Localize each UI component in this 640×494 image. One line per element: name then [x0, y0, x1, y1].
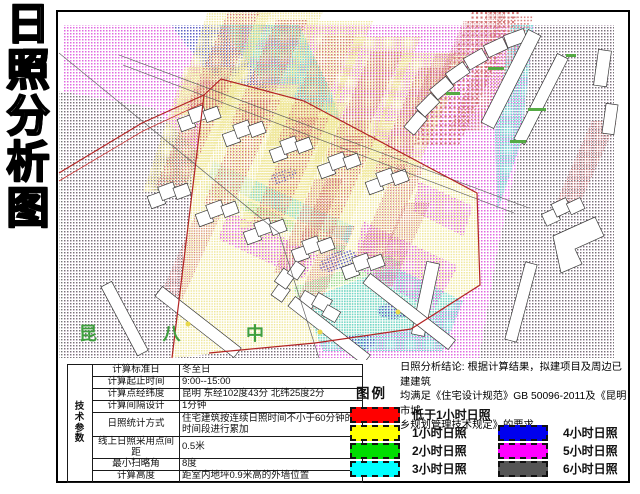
- tech-params-table: 技术参数 计算标准日 冬至日 计算起止时间 9:00--15:00 计算点经纬度…: [67, 364, 363, 483]
- title-char: 析: [2, 140, 54, 186]
- title-char: 图: [2, 186, 54, 232]
- legend-item: 3小时日照: [350, 460, 467, 477]
- legend-label: 5小时日照: [563, 442, 618, 459]
- legend-label: 4小时日照: [563, 424, 618, 441]
- tech-params-header: 技术参数: [68, 365, 93, 483]
- legend-item: 4小时日照: [498, 424, 618, 441]
- legend-swatch: [350, 425, 400, 441]
- legend-label: 低于1小时日照: [412, 406, 491, 423]
- row-label: 日照统计方式: [93, 413, 180, 437]
- title-char: 日: [2, 2, 54, 48]
- row-label: 计算高度: [93, 471, 180, 483]
- sheet-title-vertical: 日 照 分 析 图: [2, 2, 56, 232]
- row-value: 1分钟: [180, 401, 363, 413]
- legend-swatch: [350, 407, 400, 423]
- row-value: 冬至日: [180, 365, 363, 377]
- legend-swatch: [350, 443, 400, 459]
- legend-swatch: [498, 461, 548, 477]
- legend-swatch: [350, 461, 400, 477]
- legend-item: 6小时日照: [498, 460, 618, 477]
- legend-item: 低于1小时日照: [350, 406, 491, 423]
- row-label: 计算间隔设计: [93, 401, 180, 413]
- row-value: 距室内地坪0.9米高的外墙位置: [180, 471, 363, 483]
- legend-label: 1小时日照: [412, 424, 467, 441]
- legend-title: 图例: [356, 382, 387, 402]
- legend-item: 1小时日照: [350, 424, 467, 441]
- row-label: 计算标准日: [93, 365, 180, 377]
- title-char: 照: [2, 48, 54, 94]
- drawing-sheet: 日 照 分 析 图: [0, 0, 640, 494]
- row-value: 昆明 东经102度43分 北纬25度2分: [180, 389, 363, 401]
- row-label: 计算点经纬度: [93, 389, 180, 401]
- legend-label: 6小时日照: [563, 460, 618, 477]
- legend-label: 2小时日照: [412, 442, 467, 459]
- row-value: 住宅建筑按连续日照时间不小于60分钟的时间段进行累加: [180, 413, 363, 437]
- row-label: 计算起止时间: [93, 377, 180, 389]
- legend-swatch: [498, 425, 548, 441]
- row-value: 8度: [180, 459, 363, 471]
- row-value: 0.5米: [180, 437, 363, 459]
- legend-swatch: [498, 443, 548, 459]
- title-char: 分: [2, 94, 54, 140]
- legend-label: 3小时日照: [412, 460, 467, 477]
- row-label: 最小扫略角: [93, 459, 180, 471]
- legend-item: 5小时日照: [498, 442, 618, 459]
- sunshine-analysis-map: 昆 八 中: [58, 12, 628, 360]
- row-value: 9:00--15:00: [180, 377, 363, 389]
- legend-item: 2小时日照: [350, 442, 467, 459]
- row-label: 线上日照采用点间距: [93, 437, 180, 459]
- conclusion-line: 日照分析结论: 根据计算结果，拟建项目及周边已建建筑: [400, 361, 630, 390]
